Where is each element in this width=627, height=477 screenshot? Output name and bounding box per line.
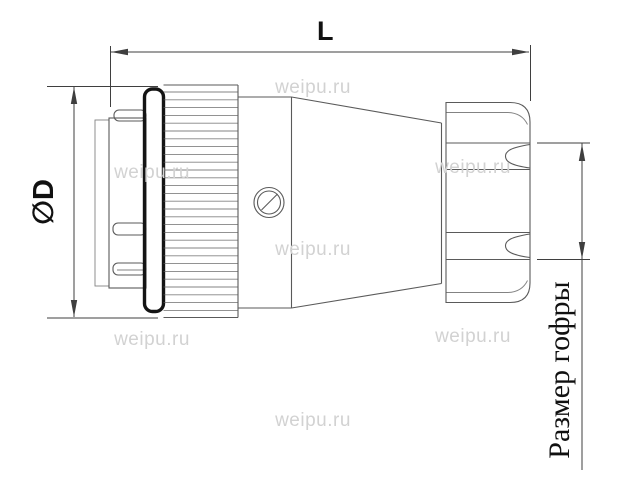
corrugation-groove-bottom: [506, 234, 531, 258]
length-dimension-label: L: [317, 16, 335, 47]
silhouette-line-bottom: [446, 281, 528, 293]
connector-technical-drawing: L ∅D Размер гофры weipu.ru weipu.ru weip…: [0, 0, 627, 477]
key-tab-middle: [113, 223, 146, 235]
watermark: weipu.ru: [423, 325, 523, 349]
coupling-ring-rim: [145, 89, 164, 312]
corrugation-dimension-label: Размер гофры: [543, 260, 577, 477]
coupling-ring: [145, 85, 239, 318]
gland-nut: [446, 103, 530, 303]
tapered-body: [292, 97, 442, 308]
gland-nut-outline: [446, 103, 530, 303]
watermark: weipu.ru: [102, 328, 202, 352]
key-tab-top: [114, 110, 146, 121]
screw-slot: [262, 194, 278, 210]
watermark: weipu.ru: [263, 409, 363, 433]
insulator-face: [95, 120, 109, 286]
arrowhead-left-icon: [111, 49, 128, 55]
key-tab-bottom: [113, 263, 146, 275]
arrowhead-up-icon: [579, 144, 585, 161]
silhouette-line-top: [446, 113, 528, 125]
watermark: weipu.ru: [263, 76, 363, 100]
diameter-dimension-label: ∅D: [26, 142, 62, 262]
arrowhead-right-icon: [512, 49, 529, 55]
body-middle-section: [238, 97, 292, 308]
watermark: weipu.ru: [263, 238, 363, 262]
watermark: weipu.ru: [423, 156, 523, 180]
knurl-rib-lines: [164, 92, 238, 310]
front-housing: [95, 110, 146, 288]
screw-head: [254, 188, 284, 218]
arrowhead-up-icon: [71, 87, 77, 104]
taper-bottom-edge: [292, 284, 442, 309]
watermark: weipu.ru: [102, 161, 202, 185]
taper-top-edge: [292, 97, 442, 123]
arrowhead-down-icon: [579, 242, 585, 259]
arrowhead-down-icon: [71, 300, 77, 317]
